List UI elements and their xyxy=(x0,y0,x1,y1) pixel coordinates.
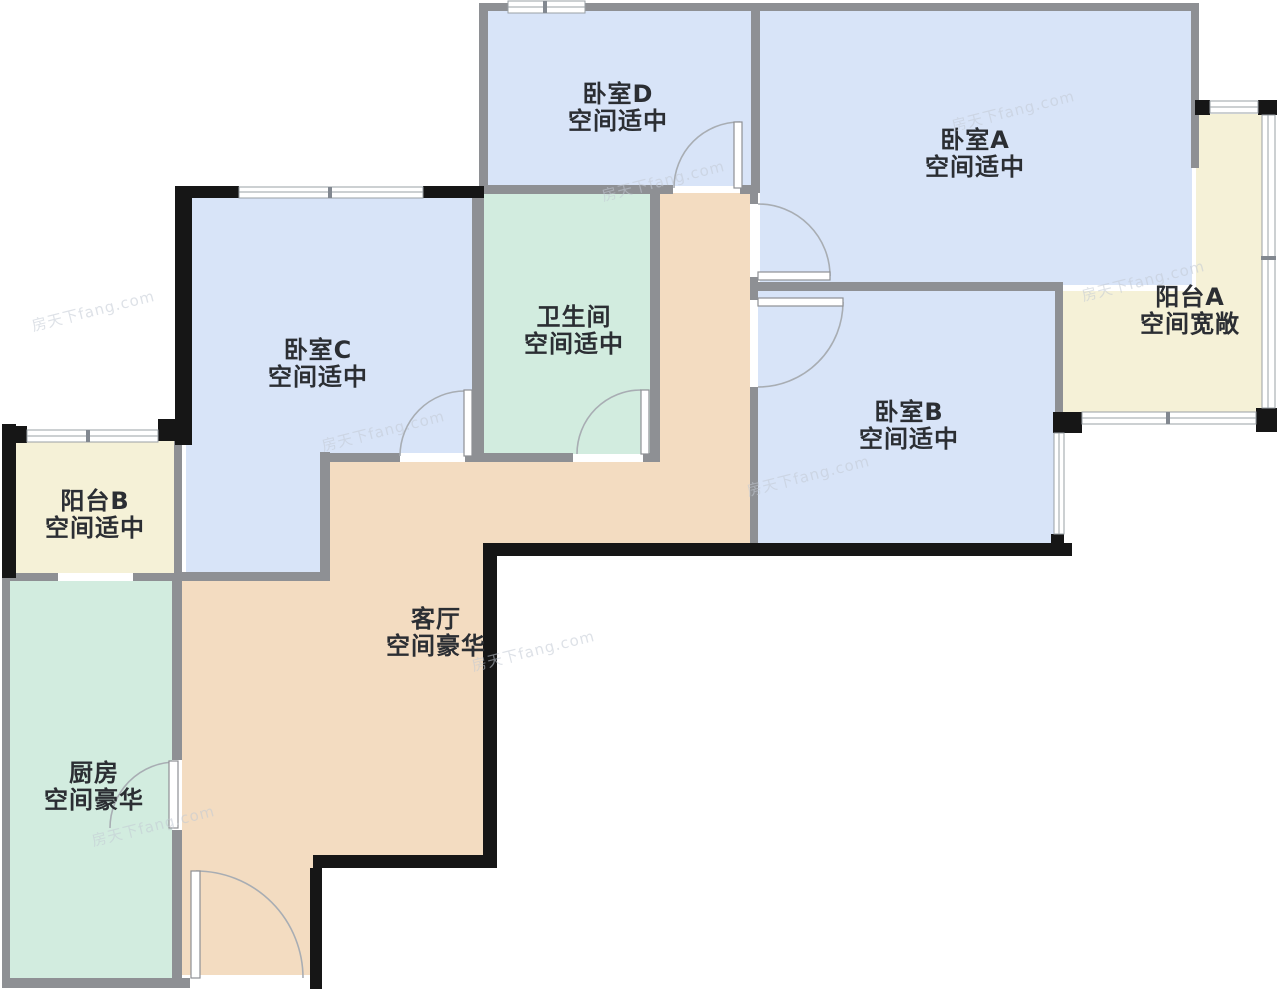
bedroom-d-window xyxy=(508,1,585,13)
wall-bedroom-c-left xyxy=(175,186,192,445)
wall-d-a-divider xyxy=(751,8,760,193)
wall-bedroom-d-left xyxy=(479,3,488,194)
wall-kitchen-right-2 xyxy=(172,830,182,978)
wall-bedroom-a-right xyxy=(1191,3,1199,168)
window-post-balcony-a-bottomright xyxy=(1256,408,1277,432)
room-name: 厨房 xyxy=(0,760,204,787)
room-note: 空间适中 xyxy=(0,515,205,542)
room-name: 卧室B xyxy=(799,399,1019,426)
wall-hallway-right-3 xyxy=(750,387,758,543)
room-name: 客厅 xyxy=(326,606,546,633)
wall-bathroom-bottom-1 xyxy=(484,453,573,462)
balcony-b-window xyxy=(27,430,158,442)
wall-bedroom-c-bottom-1 xyxy=(330,453,400,462)
wall-kitchen-balcony-b-1 xyxy=(10,573,58,581)
wall-bottom-exterior xyxy=(484,543,1072,556)
room-label-bathroom: 卫生间 空间适中 xyxy=(464,304,684,358)
room-label-bedroom-a: 卧室A 空间适中 xyxy=(865,127,1085,181)
wall-entry-right xyxy=(310,868,322,989)
room-label-bedroom-c: 卧室C 空间适中 xyxy=(208,337,428,391)
window-post-bedroom-b-bottom xyxy=(1051,534,1064,547)
room-note: 空间豪华 xyxy=(326,633,546,660)
room-name: 卧室C xyxy=(208,337,428,364)
room-name: 阳台B xyxy=(0,488,205,515)
window-post-balcony-a-bottomleft xyxy=(1053,412,1082,433)
room-label-living-room: 客厅 空间豪华 xyxy=(326,606,546,660)
room-note: 空间适中 xyxy=(865,154,1085,181)
wall-top-exterior xyxy=(479,3,1198,11)
balcony-a-top-window xyxy=(1210,101,1258,113)
room-label-bedroom-d: 卧室D 空间适中 xyxy=(508,81,728,135)
balcony-a-bottom-window xyxy=(1082,412,1256,424)
wall-kitchen-balcony-b-2 xyxy=(133,573,174,581)
room-name: 阳台A xyxy=(1080,284,1278,311)
wall-living-right-exterior xyxy=(483,543,497,868)
wall-bedroom-d-bottom-1 xyxy=(487,185,673,194)
room-label-bedroom-b: 卧室B 空间适中 xyxy=(799,399,1019,453)
window-post-balcony-b-left xyxy=(2,426,27,443)
bedroom-b-window xyxy=(1054,433,1064,534)
wall-living-bottom-step xyxy=(313,855,497,868)
wall-kitchen-bottom xyxy=(2,978,190,988)
bedroom-c-window xyxy=(239,187,423,198)
wall-bedroom-c-lower-bottom xyxy=(174,572,330,581)
room-name: 卧室A xyxy=(865,127,1085,154)
wall-a-b-divider xyxy=(758,282,1063,291)
room-note: 空间适中 xyxy=(464,331,684,358)
room-note: 空间豪华 xyxy=(0,787,204,814)
window-post-balcony-b-right xyxy=(158,419,183,441)
room-note: 空间适中 xyxy=(508,108,728,135)
window-post-balcony-a-topright xyxy=(1258,100,1277,115)
room-name: 卫生间 xyxy=(464,304,684,331)
wall-bedroom-c-step xyxy=(320,452,330,581)
wall-kitchen-right-1 xyxy=(172,581,182,760)
wall-hallway-right-2 xyxy=(750,277,758,300)
window-post-balcony-a-topleft xyxy=(1195,100,1210,115)
room-note: 空间适中 xyxy=(799,426,1019,453)
room-note: 空间宽敞 xyxy=(1080,311,1278,338)
room-note: 空间适中 xyxy=(208,364,428,391)
balcony-a-right-window xyxy=(1261,115,1276,408)
room-label-balcony-a: 阳台A 空间宽敞 xyxy=(1080,284,1278,338)
wall-bedroom-c-top-2 xyxy=(423,186,484,198)
room-name: 卧室D xyxy=(508,81,728,108)
room-label-balcony-b: 阳台B 空间适中 xyxy=(0,488,205,542)
wall-hallway-right-1 xyxy=(750,193,758,204)
room-label-kitchen: 厨房 空间豪华 xyxy=(0,760,204,814)
floorplan-page: 卧室D 空间适中 卧室A 空间适中 阳台A 空间宽敞 卧室C 空间适中 卫生间 … xyxy=(0,0,1278,989)
wall-bedroom-b-right xyxy=(1055,285,1063,415)
